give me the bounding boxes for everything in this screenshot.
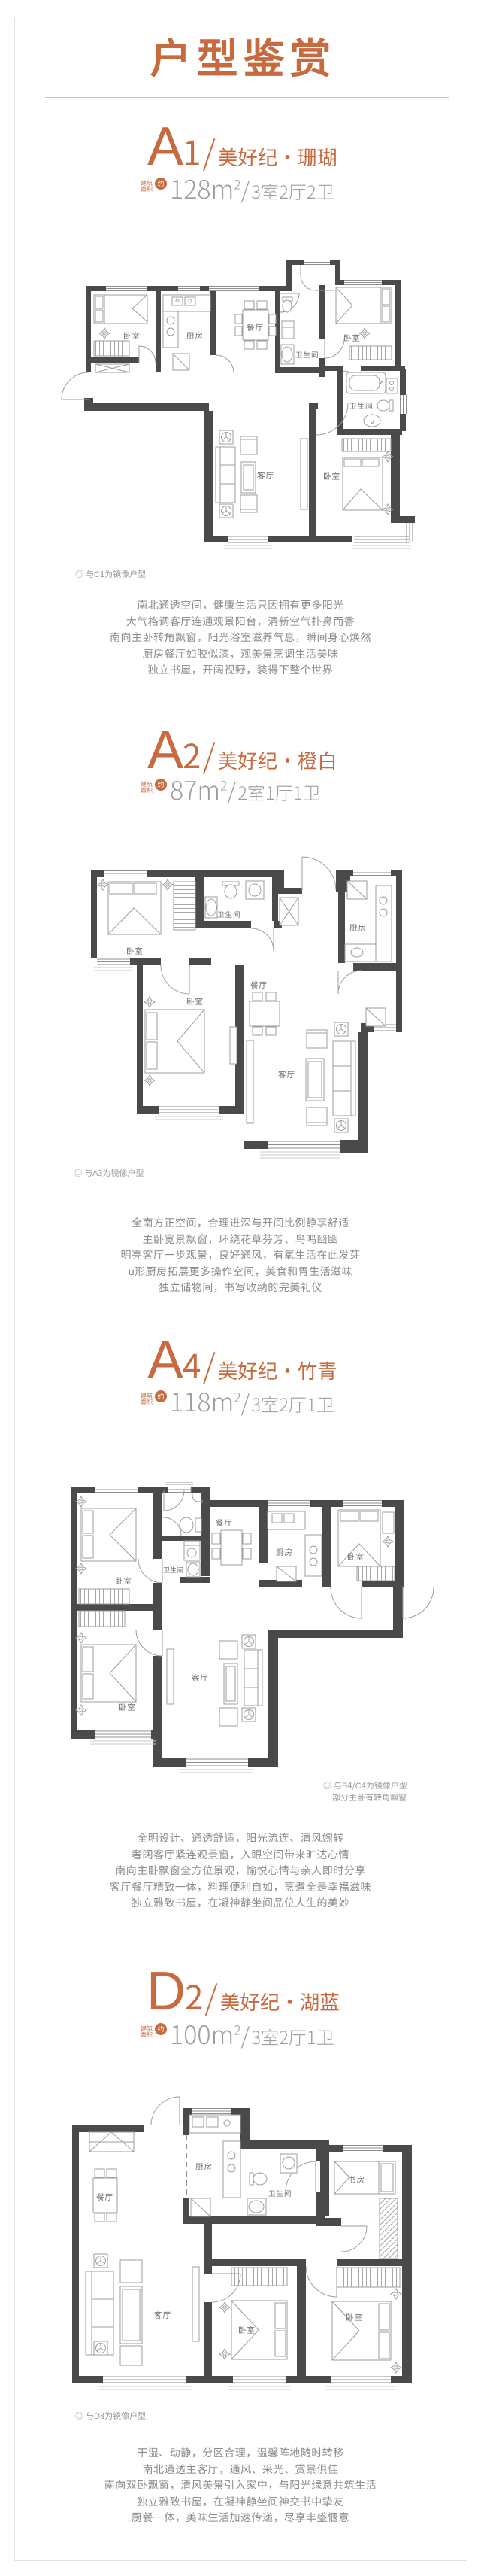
svg-text:卧室: 卧室 <box>323 471 340 482</box>
svg-text:卧室: 卧室 <box>346 2312 363 2323</box>
svg-text:卫生间: 卫生间 <box>217 909 241 919</box>
svg-text:书房: 书房 <box>348 2174 365 2186</box>
svg-text:客厅: 客厅 <box>192 1672 209 1684</box>
svg-text:卫生间: 卫生间 <box>163 1565 183 1575</box>
svg-text:卫生间: 卫生间 <box>295 349 319 360</box>
svg-text:卫生间: 卫生间 <box>349 400 374 411</box>
svg-text:卧室: 卧室 <box>123 330 141 342</box>
svg-text:餐厅: 餐厅 <box>250 980 268 991</box>
svg-text:厨房: 厨房 <box>276 1547 293 1558</box>
svg-text:厨房: 厨房 <box>195 2161 213 2173</box>
svg-text:餐厅: 餐厅 <box>247 322 264 333</box>
svg-text:客厅: 客厅 <box>257 470 274 481</box>
svg-text:客厅: 客厅 <box>278 1069 295 1080</box>
svg-text:卧室: 卧室 <box>115 1575 132 1587</box>
svg-text:卧室: 卧室 <box>238 2325 256 2336</box>
svg-text:卧室: 卧室 <box>343 333 361 344</box>
svg-text:客厅: 客厅 <box>154 2310 171 2321</box>
svg-text:厨房: 厨房 <box>186 330 204 342</box>
svg-text:餐厅: 餐厅 <box>216 1517 233 1529</box>
svg-text:厨房: 厨房 <box>349 922 367 934</box>
svg-text:卧室: 卧室 <box>119 1702 136 1713</box>
svg-text:卧室: 卧室 <box>126 946 144 957</box>
svg-text:卧室: 卧室 <box>186 996 204 1007</box>
svg-text:卧室: 卧室 <box>347 1551 365 1563</box>
svg-text:卫生间: 卫生间 <box>268 2188 292 2198</box>
svg-text:餐厅: 餐厅 <box>96 2192 113 2203</box>
